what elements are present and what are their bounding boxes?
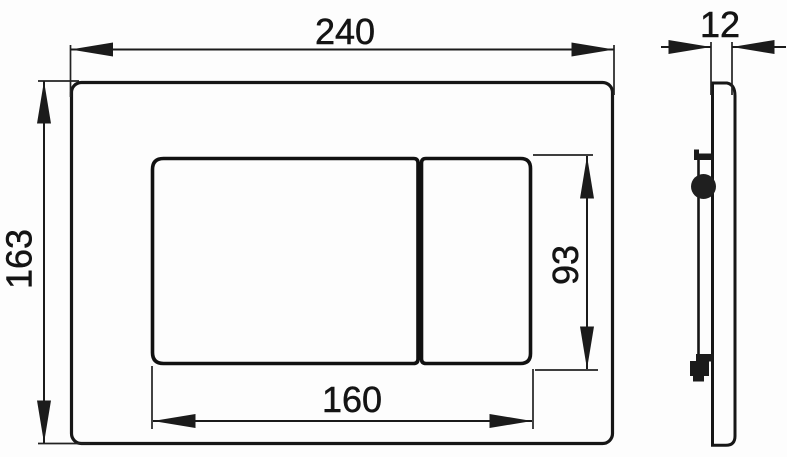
svg-text:160: 160 <box>322 379 382 420</box>
svg-text:12: 12 <box>700 4 740 45</box>
svg-text:163: 163 <box>0 229 40 289</box>
svg-text:240: 240 <box>315 11 375 52</box>
svg-text:93: 93 <box>545 245 586 285</box>
